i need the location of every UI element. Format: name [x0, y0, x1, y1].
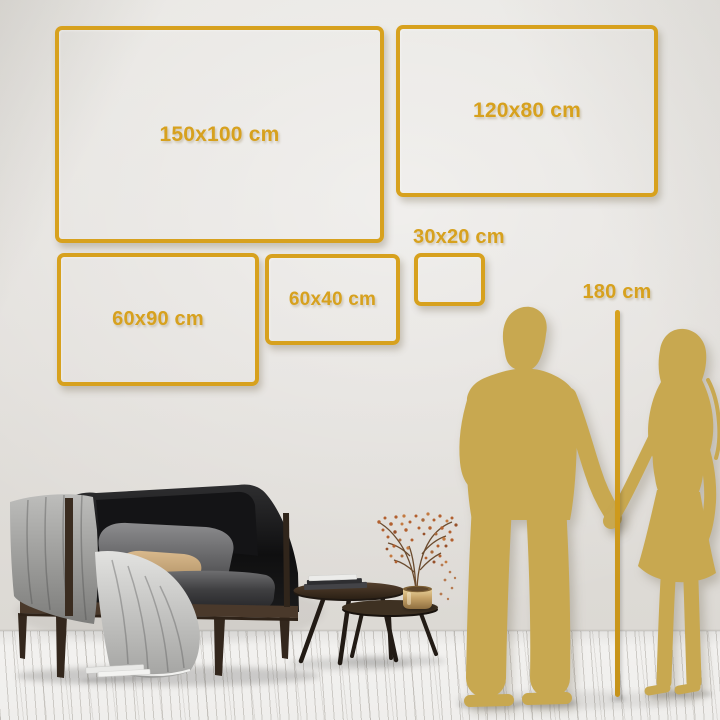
size-label-120x80: 120x80 cm — [473, 99, 581, 123]
sofa-wood-post-right — [283, 513, 290, 607]
sofa — [10, 484, 299, 683]
size-label-60x90: 60x90 cm — [112, 308, 204, 331]
wall-art-size-guide: 150x100 cm 120x80 cm 60x90 cm 60x40 cm 3… — [0, 0, 720, 720]
brass-vase — [403, 586, 437, 611]
couple-silhouettes — [430, 280, 720, 720]
books-stack — [304, 574, 367, 590]
size-label-30x20: 30x20 cm — [413, 226, 505, 249]
height-ruler-line — [615, 310, 620, 697]
size-label-60x40: 60x40 cm — [289, 289, 376, 311]
woman-silhouette — [603, 329, 719, 691]
man-silhouette — [466, 307, 622, 701]
size-frame-120x80: 120x80 cm — [396, 25, 658, 197]
size-frame-60x40: 60x40 cm — [265, 254, 400, 345]
size-label-150x100: 150x100 cm — [160, 123, 280, 147]
fallen-petals — [440, 564, 457, 601]
size-frame-60x90: 60x90 cm — [57, 253, 259, 386]
living-room-furniture — [0, 470, 470, 720]
height-label: 180 cm — [575, 281, 659, 304]
size-frame-150x100: 150x100 cm — [55, 26, 384, 243]
plant-flowers — [377, 512, 457, 563]
sofa-wood-post-left — [65, 498, 73, 616]
